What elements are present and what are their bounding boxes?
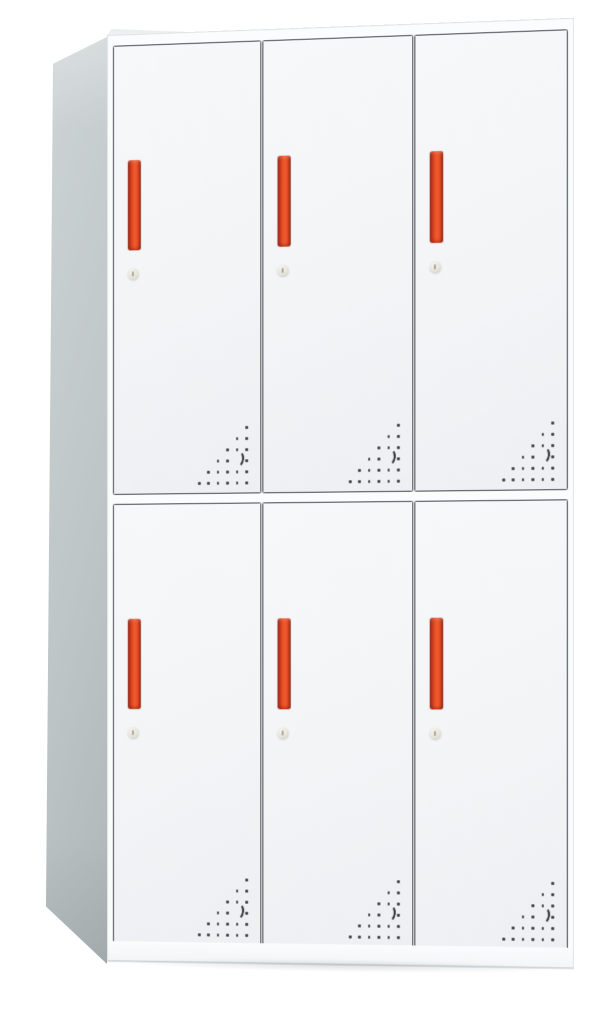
doors-grid (113, 29, 568, 951)
vent-dot (358, 936, 361, 939)
vent-dot (368, 936, 371, 939)
vent-dot (378, 925, 381, 928)
vent-dot (397, 936, 400, 939)
vent-crescent (382, 904, 397, 923)
vent-dot (388, 925, 391, 928)
vent-dot (226, 482, 229, 485)
vent-dot (246, 934, 249, 937)
vent-dot (378, 936, 381, 939)
vent-dot (378, 902, 381, 905)
vent-dot (552, 927, 555, 930)
vent-dot (226, 923, 229, 926)
vent-dot (542, 927, 545, 930)
vent-dot (378, 913, 381, 916)
vent-dot (542, 467, 545, 470)
vent-dot (358, 924, 361, 927)
vent-dot (236, 889, 239, 892)
vent-dot (397, 468, 400, 471)
vent-dot (246, 481, 249, 484)
vent-dot (552, 882, 555, 885)
locker-door (414, 29, 568, 491)
keyhole (282, 730, 284, 735)
vent-dot (236, 470, 239, 473)
vent-perforations (198, 426, 248, 485)
vent-dot (552, 467, 555, 470)
vent-dot (552, 455, 555, 458)
locker-door (113, 502, 261, 946)
vent-dot (552, 916, 555, 919)
vent-dot (217, 911, 220, 914)
vent-dot (388, 936, 391, 939)
vent-dot (532, 904, 535, 907)
vent-dot (542, 433, 545, 436)
vent-perforations (349, 880, 400, 940)
locker-door (262, 501, 413, 949)
vent-dot (378, 458, 381, 461)
vent-crescent (230, 902, 245, 921)
vent-dot (226, 900, 229, 903)
locker-door (414, 499, 568, 951)
keyhole (132, 271, 134, 276)
vent-dot (349, 480, 352, 483)
vent-dot (397, 480, 400, 483)
vent-dot (532, 915, 535, 918)
vent-dot (217, 934, 220, 937)
vent-dot (542, 893, 545, 896)
vent-dot (207, 482, 210, 485)
vent-crescent (536, 446, 551, 465)
vent-dot (397, 880, 400, 883)
vent-dot (207, 471, 210, 474)
door-lock (430, 261, 441, 272)
vent-dot (397, 457, 400, 460)
vent-dot (246, 912, 249, 915)
vent-dot (532, 444, 535, 447)
vent-dot (217, 460, 220, 463)
vent-dot (378, 480, 381, 483)
vent-dot (552, 444, 555, 447)
door-lock (278, 265, 289, 276)
locker-cabinet-photo (0, 0, 605, 1009)
vent-dot (246, 437, 249, 440)
vent-dot (246, 879, 249, 882)
vent-dot (522, 478, 525, 481)
vent-perforations (502, 421, 554, 481)
vent-dot (388, 891, 391, 894)
vent-dot (512, 467, 515, 470)
vent-crescent (230, 450, 245, 468)
vent-dot (217, 482, 220, 485)
vent-dot (246, 901, 249, 904)
vent-dot (552, 938, 555, 941)
keyhole (434, 264, 436, 269)
vent-dot (246, 923, 249, 926)
vent-dot (532, 467, 535, 470)
keyhole (282, 268, 284, 273)
vent-dot (246, 459, 249, 462)
vent-dot (512, 938, 515, 941)
vent-dot (502, 938, 505, 941)
vent-dot (522, 927, 525, 930)
vent-crescent (536, 906, 551, 925)
door-lock (278, 727, 289, 738)
vent-dot (198, 482, 201, 485)
vent-dot (388, 469, 391, 472)
vent-dot (388, 480, 391, 483)
door-handle (430, 618, 443, 710)
vent-dot (226, 934, 229, 937)
vent-dot (207, 922, 210, 925)
vent-dot (198, 933, 201, 936)
vent-dot (552, 433, 555, 436)
door-handle (128, 160, 141, 250)
vent-dot (532, 938, 535, 941)
door-lock (128, 727, 139, 738)
vent-dot (512, 478, 515, 481)
vent-dot (358, 480, 361, 483)
vent-dot (397, 435, 400, 438)
vent-dot (397, 925, 400, 928)
vent-dot (532, 456, 535, 459)
vent-dot (368, 458, 371, 461)
keyhole (434, 731, 436, 736)
vent-dot (552, 421, 555, 424)
vent-dot (522, 467, 525, 470)
vent-dot (358, 469, 361, 472)
door-handle (278, 156, 291, 247)
vent-dot (552, 904, 555, 907)
door-lock (430, 728, 441, 739)
vent-dot (236, 437, 239, 440)
vent-dot (397, 891, 400, 894)
vent-dot (226, 448, 229, 451)
door-lock (128, 268, 139, 279)
cabinet-side-panel (46, 37, 107, 964)
vent-dot (502, 478, 505, 481)
vent-dot (522, 915, 525, 918)
vent-dot (246, 890, 249, 893)
vent-dot (368, 480, 371, 483)
vent-dot (368, 469, 371, 472)
vent-dot (532, 927, 535, 930)
vent-dot (552, 478, 555, 481)
vent-dot (368, 913, 371, 916)
vent-dot (368, 925, 371, 928)
vent-dot (226, 471, 229, 474)
vent-dot (542, 938, 545, 941)
vent-dot (246, 448, 249, 451)
vent-dot (236, 934, 239, 937)
vent-dot (397, 903, 400, 906)
vent-dot (236, 481, 239, 484)
vent-dot (522, 938, 525, 941)
vent-dot (246, 426, 249, 429)
vent-dot (217, 471, 220, 474)
vent-dot (388, 435, 391, 438)
vent-dot (236, 923, 239, 926)
vent-perforations (349, 424, 400, 484)
locker-door (113, 40, 261, 495)
vent-dot (207, 933, 210, 936)
vent-dot (532, 478, 535, 481)
vent-dot (512, 926, 515, 929)
vent-dot (378, 469, 381, 472)
vent-dot (397, 424, 400, 427)
door-handle (128, 619, 141, 709)
vent-perforations (198, 878, 248, 937)
vent-dot (522, 456, 525, 459)
vent-dot (246, 470, 249, 473)
vent-dot (349, 935, 352, 938)
vent-dot (542, 478, 545, 481)
vent-perforations (502, 881, 554, 941)
vent-dot (226, 459, 229, 462)
vent-dot (552, 893, 555, 896)
vent-dot (217, 922, 220, 925)
vent-dot (397, 914, 400, 917)
vent-dot (397, 446, 400, 449)
keyhole (132, 730, 134, 735)
vent-dot (226, 912, 229, 915)
vent-crescent (382, 448, 397, 466)
vent-dot (378, 446, 381, 449)
cabinet-front (107, 18, 574, 970)
locker-door (262, 35, 413, 493)
door-handle (430, 151, 443, 243)
door-handle (278, 618, 291, 709)
